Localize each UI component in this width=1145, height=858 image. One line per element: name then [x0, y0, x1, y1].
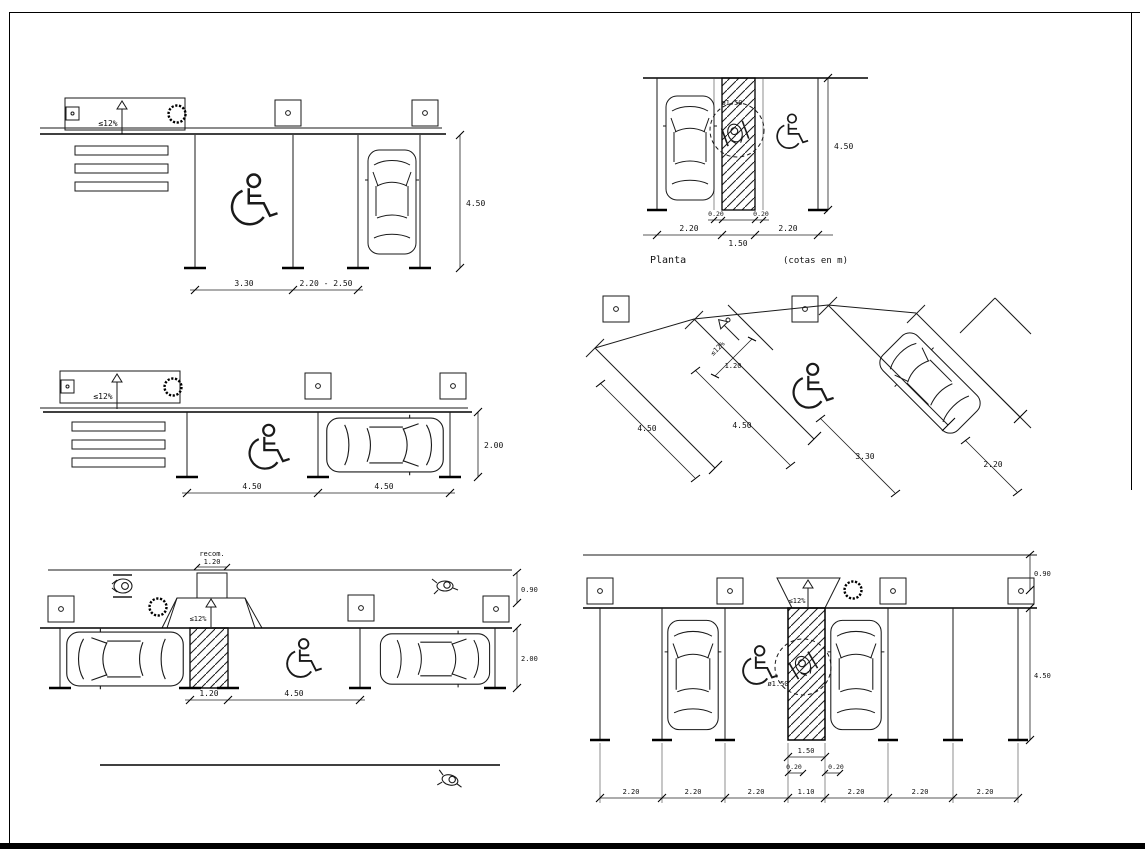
slope-label: ≤12%	[709, 339, 727, 357]
dim-stall-left: 2.20	[679, 224, 698, 233]
parking-sign-icon	[412, 100, 438, 126]
dim-stall-a: 4.50	[637, 424, 656, 433]
crosswalk	[75, 146, 168, 191]
dim-margin-left: 0.20	[786, 763, 802, 771]
curb-ramp: ≤12%	[777, 578, 840, 608]
diagram-parallel-stalls-middle-left: ≤12% 4.50 4.50 2.00	[40, 365, 505, 515]
dim-margin-right: 0.20	[753, 210, 769, 218]
tree-icon	[169, 106, 186, 123]
tactile-walk: recom. 1.20	[194, 550, 230, 598]
hatched-ramp-strip	[190, 628, 228, 688]
hatched-aisle	[788, 608, 825, 740]
slope-label: ≤12%	[98, 119, 117, 128]
parking-sign-icon	[305, 373, 331, 399]
dim-ramp-width: 1.20	[725, 362, 742, 370]
wheelchair-symbol	[777, 114, 808, 148]
dim-stall-width: 3.30	[234, 279, 253, 288]
turning-diameter-label: ø1.50	[767, 680, 788, 688]
slope-label: ≤12%	[190, 615, 208, 623]
dim-depth: 2.00	[521, 655, 538, 663]
car-top-view	[663, 96, 717, 200]
tree-icon	[165, 379, 182, 396]
car-top-view	[67, 629, 183, 689]
pedestrian-top-icon	[435, 770, 464, 791]
ramp: ≤12%	[60, 371, 182, 409]
dim-aisle: 1.50	[798, 747, 815, 755]
sheet-border-right	[1131, 12, 1132, 490]
parking-sign-icon	[792, 296, 818, 322]
dim-stall-b: 4.50	[374, 482, 393, 491]
wheelchair-user-top-icon	[112, 575, 132, 597]
dim-aisle: 1.50	[728, 239, 747, 248]
dim-stall-b: 4.50	[732, 421, 751, 430]
car-top-view	[873, 326, 987, 440]
car-top-view	[365, 150, 419, 254]
dim-stall-length: 4.50	[284, 689, 303, 698]
parking-sign-icon	[483, 596, 509, 622]
dim-depth: 4.50	[466, 199, 485, 208]
dim-row-4: 2.20	[848, 788, 865, 796]
dim-stall-right: 2.20	[778, 224, 797, 233]
tree-icon	[150, 599, 167, 616]
parking-sign-icon	[48, 596, 74, 622]
slope-label: ≤12%	[789, 597, 807, 605]
dim-row-6: 2.20	[977, 788, 994, 796]
sheet-border-top	[9, 12, 1140, 13]
sheet-border-bottom	[0, 843, 1145, 849]
diagram-angled-stalls-plan: ≤12% 1.20 4.50 4.50 3.30 2.20	[565, 288, 1045, 523]
stall-lines	[49, 628, 506, 688]
wheelchair-symbol	[794, 364, 834, 408]
car-top-view	[327, 415, 443, 475]
dim-row-0: 2.20	[623, 788, 640, 796]
dim-row-1: 2.20	[685, 788, 702, 796]
curb-ramp: ≤12%	[162, 598, 262, 628]
crosswalk	[72, 422, 165, 467]
units-note: (cotas en m)	[783, 256, 848, 266]
dim-depth: 4.50	[834, 142, 853, 151]
dim-ramp-width: 1.20	[199, 689, 218, 698]
dim-row-3: 1.10	[798, 788, 815, 796]
pedestrian-top-icon	[432, 579, 458, 594]
parking-sign-icon	[880, 578, 906, 604]
wheelchair-symbol	[287, 639, 322, 677]
wheelchair-symbol	[743, 646, 778, 684]
dim-depth: 2.00	[484, 441, 503, 450]
slope-label: ≤12%	[93, 392, 112, 401]
parking-sign-icon	[603, 296, 629, 322]
car-top-view	[665, 620, 722, 729]
parking-sign-icon	[587, 578, 613, 604]
dim-stall-width: 2.20	[983, 460, 1002, 469]
stall-lines	[176, 412, 461, 477]
tree-icon	[845, 582, 862, 599]
turning-diameter-label: ø1.50	[721, 99, 742, 107]
dim-sidewalk: 0.90	[1034, 570, 1051, 578]
diagram-perpendicular-row-plan: ≤12% ø1.50 0.90 4.50	[575, 545, 1045, 825]
parking-sign-icon	[717, 578, 743, 604]
dim-car-stall: 3.30	[855, 452, 874, 461]
car-top-view	[380, 631, 489, 688]
sheet-border-left	[9, 12, 10, 848]
diagram-perpendicular-stalls-top-left: ≤12% 3.30 2.20 - 2.50 4.	[40, 90, 490, 315]
walk-width: 1.20	[204, 558, 221, 566]
car-top-view	[828, 620, 885, 729]
cad-sheet: ≤12% 3.30 2.20 - 2.50 4.	[0, 0, 1145, 858]
parking-sign-icon	[440, 373, 466, 399]
dimensions: 3.30 2.20 - 2.50 4.50	[190, 131, 485, 294]
dim-margin-left: 0.20	[708, 210, 724, 218]
wheelchair-symbol	[232, 175, 277, 225]
stall-lines	[184, 135, 431, 268]
dim-sidewalk: 0.90	[521, 586, 538, 594]
dim-margin-right: 0.20	[828, 763, 844, 771]
dimensions: 4.50 4.50 2.00	[182, 408, 503, 497]
diagram-perpendicular-pair-plan: ø1.50 4.50 0.20 0.20 2.20 1.50 2.20 Plan…	[628, 63, 928, 278]
dim-stall-a: 4.50	[242, 482, 261, 491]
dim-row-2: 2.20	[748, 788, 765, 796]
dim-depth: 4.50	[1034, 672, 1051, 680]
dim-row-5: 2.20	[912, 788, 929, 796]
wheelchair-symbol	[250, 425, 290, 469]
diagram-parallel-stalls-with-ramp-bottom-left: recom. 1.20 ≤12%	[35, 548, 545, 820]
dim-adjacent-stall: 2.20 - 2.50	[300, 279, 353, 288]
walk-note: recom.	[199, 550, 224, 558]
ramp: ≤12%	[65, 98, 186, 134]
plan-title: Planta	[650, 255, 686, 266]
parking-sign-icon	[348, 595, 374, 621]
parking-sign-icon	[275, 100, 301, 126]
